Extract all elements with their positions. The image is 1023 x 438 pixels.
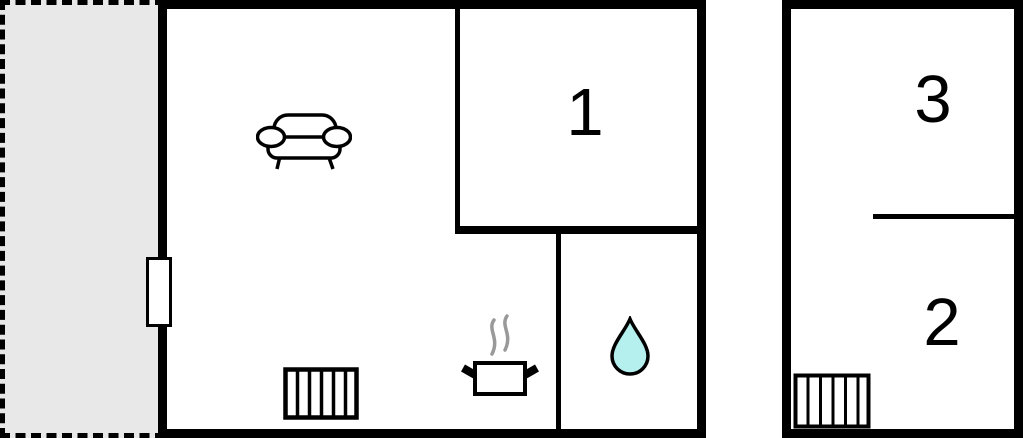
steaming-pot-icon bbox=[460, 312, 540, 398]
room-1-label: 1 bbox=[545, 79, 625, 146]
room1-left-wall bbox=[455, 9, 460, 230]
room-3-label: 3 bbox=[893, 66, 973, 133]
sofa-icon bbox=[256, 112, 352, 172]
room1-bottom-wall bbox=[455, 226, 697, 234]
room-2-label: 2 bbox=[902, 289, 982, 356]
annex-divider-wall bbox=[873, 214, 1014, 219]
annex-building: 3 2 bbox=[782, 0, 1023, 438]
water-drop-icon bbox=[608, 316, 652, 376]
window-door-marker bbox=[146, 257, 172, 327]
radiator-icon bbox=[793, 373, 871, 429]
bathroom-divider-wall bbox=[556, 226, 561, 429]
terrace-area bbox=[0, 0, 165, 438]
floor-plan: 1 bbox=[0, 0, 1023, 438]
radiator-icon bbox=[283, 367, 359, 420]
main-building: 1 bbox=[158, 0, 706, 438]
